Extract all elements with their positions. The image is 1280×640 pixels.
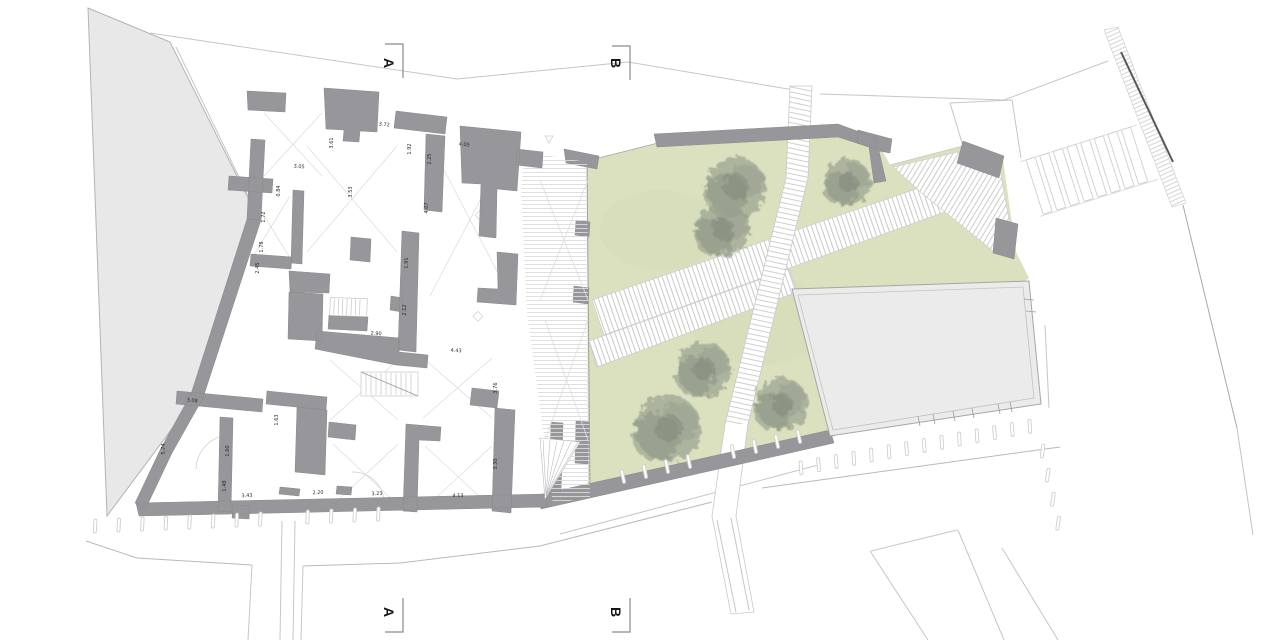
band-dark-edge bbox=[1121, 52, 1173, 162]
section-marker-a-bottom: A bbox=[381, 598, 403, 632]
dimension-label: 1.72 bbox=[261, 211, 267, 222]
dimension-label: 4.07 bbox=[424, 202, 430, 213]
parking-stripe bbox=[329, 509, 333, 523]
dimension-label: 2.20 bbox=[312, 490, 323, 496]
parking-stall bbox=[1081, 140, 1107, 197]
parking-stripe bbox=[235, 513, 239, 527]
parking-stripe bbox=[993, 426, 997, 440]
dimension-label: 2.12 bbox=[402, 304, 408, 315]
parking-stripe bbox=[1010, 422, 1014, 436]
dimension-label: 0.84 bbox=[276, 185, 282, 196]
architectural-site-plan: 3.053.613.721.922.254.053.530.841.721.78… bbox=[0, 0, 1280, 640]
parking-stripe bbox=[817, 458, 821, 472]
dimension-label: 1.60 bbox=[225, 445, 231, 456]
parking-stall bbox=[1026, 157, 1052, 214]
diagonal-steps-band bbox=[1104, 27, 1253, 535]
section-letter-b: B bbox=[608, 58, 624, 68]
parking-stripe bbox=[1056, 516, 1061, 530]
parking-stall bbox=[1067, 144, 1093, 201]
parking-stripe bbox=[1050, 492, 1055, 506]
parking-stripe bbox=[852, 451, 856, 465]
parking-stripe bbox=[799, 461, 803, 475]
section-marker-a-top: A bbox=[381, 44, 403, 78]
parking-stripe bbox=[1040, 444, 1045, 458]
parking-stripe bbox=[957, 432, 961, 446]
dimension-label: 3.61 bbox=[329, 137, 335, 148]
dimension-label: 1.92 bbox=[407, 143, 413, 154]
diamond-marker bbox=[473, 311, 483, 321]
parking-stripe bbox=[117, 518, 121, 532]
dimension-label: 3.30 bbox=[493, 458, 499, 469]
dimension-label: 4.43 bbox=[450, 348, 462, 355]
dimension-label: 1.63 bbox=[274, 414, 280, 425]
dimension-label: 3.05 bbox=[293, 164, 305, 171]
dimension-label: 2.45 bbox=[255, 262, 261, 273]
dimension-label: 3.76 bbox=[493, 382, 499, 393]
parking-stripe bbox=[975, 429, 979, 443]
parking-stripe bbox=[258, 512, 262, 526]
stair-straight bbox=[330, 297, 368, 316]
parking-stripe bbox=[376, 507, 380, 521]
triangle-marker bbox=[545, 136, 553, 143]
dimension-label: 1.91 bbox=[404, 257, 410, 268]
parking-stall bbox=[1108, 131, 1134, 188]
dimension-label: 3.43 bbox=[241, 493, 252, 499]
context-lines bbox=[150, 33, 1108, 158]
parking-stripe bbox=[353, 508, 357, 522]
parking-stripe bbox=[834, 454, 838, 468]
parking-stripe bbox=[1028, 419, 1032, 433]
parking-stripe bbox=[922, 438, 926, 452]
parking-stripe bbox=[905, 442, 909, 456]
plaza-surface bbox=[792, 281, 1041, 436]
dimension-label: 3.23 bbox=[371, 491, 382, 497]
section-marker-b-top: B bbox=[608, 46, 630, 80]
parking-stripe bbox=[940, 435, 944, 449]
parking-stripe bbox=[887, 445, 891, 459]
stair-fan bbox=[361, 372, 418, 396]
section-letter-a: A bbox=[381, 607, 397, 617]
dimension-label: 4.05 bbox=[458, 141, 470, 148]
dimension-label: 2.25 bbox=[427, 153, 433, 164]
parking-stall bbox=[1040, 153, 1066, 210]
dimension-label: 3.53 bbox=[348, 186, 354, 197]
parking-stripe bbox=[188, 515, 192, 529]
section-marker-b-bottom: B bbox=[608, 598, 630, 632]
parking-stall bbox=[1094, 136, 1120, 193]
section-letter-b: B bbox=[608, 607, 624, 617]
site-plan-page: 3.053.613.721.922.254.053.530.841.721.78… bbox=[0, 0, 1280, 640]
dimension-label: 1.78 bbox=[259, 241, 265, 252]
parking-stripe bbox=[1045, 468, 1050, 482]
parking-stripe bbox=[140, 517, 144, 531]
dimension-label: 1.48 bbox=[222, 480, 228, 491]
section-letter-a: A bbox=[381, 58, 397, 68]
dimension-label: 2.90 bbox=[370, 331, 382, 338]
parking-stripe bbox=[211, 514, 215, 528]
parking-stripe bbox=[869, 448, 873, 462]
parking-stripe bbox=[164, 516, 168, 530]
dimension-label: 4.13 bbox=[452, 493, 463, 499]
dimension-label: 5.74 bbox=[161, 443, 167, 454]
parking-stalls bbox=[1020, 124, 1158, 217]
parking-stripe bbox=[306, 510, 310, 524]
parking-stripe bbox=[93, 519, 97, 533]
plaza bbox=[792, 281, 1041, 436]
parking-stall bbox=[1053, 149, 1079, 206]
dimension-label: 3.72 bbox=[378, 121, 390, 128]
parking-stall bbox=[1121, 127, 1147, 184]
